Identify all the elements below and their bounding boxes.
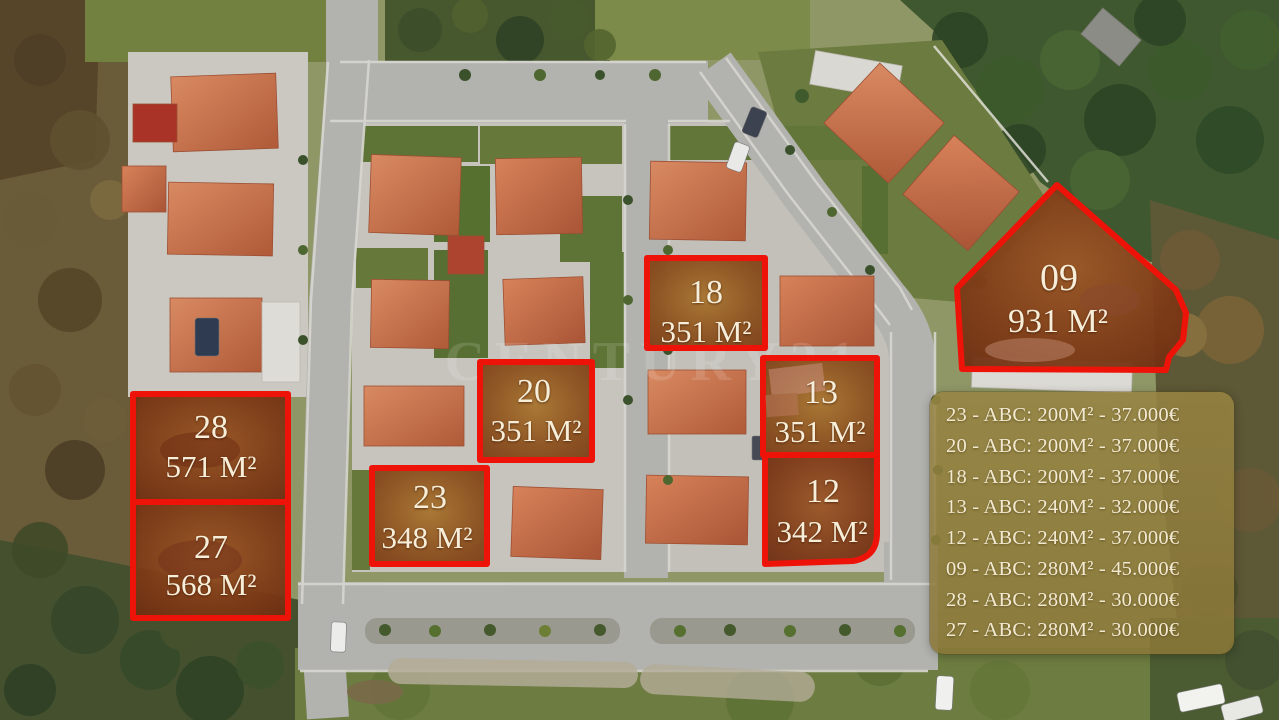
price-row: 28 - ABC: 280M² - 30.000€ xyxy=(946,590,1224,611)
covered-boat xyxy=(195,318,219,356)
house-roof xyxy=(495,157,582,234)
listing-aerial-photo: CENTURY21 28 571 M² 27 568 M² 23 348 M² … xyxy=(0,0,1279,720)
garage-roof xyxy=(262,302,300,382)
plot-28-area: 571 M² xyxy=(165,449,256,484)
price-row: 20 - ABC: 200M² - 37.000€ xyxy=(946,436,1224,457)
house-roof xyxy=(167,182,273,256)
shed-roof xyxy=(133,104,177,142)
plot-13-number: 13 xyxy=(804,374,838,411)
van xyxy=(935,676,954,711)
price-row: 18 - ABC: 200M² - 37.000€ xyxy=(946,467,1224,488)
plot-12-number: 12 xyxy=(806,473,840,510)
plot-09-number: 09 xyxy=(1040,257,1078,299)
plot-20-number: 20 xyxy=(517,373,551,410)
plot-23-number: 23 xyxy=(413,479,447,516)
plot-28-number: 28 xyxy=(194,409,228,446)
plot-18-number: 18 xyxy=(689,274,723,311)
debris-pile xyxy=(347,680,403,704)
house-roof xyxy=(171,73,279,152)
price-row: 12 - ABC: 240M² - 37.000€ xyxy=(946,528,1224,549)
house-roof xyxy=(370,279,449,348)
house-roof xyxy=(364,386,464,446)
plot-20-area: 351 M² xyxy=(490,413,581,448)
plot-12-area: 342 M² xyxy=(776,514,867,549)
price-row: 23 - ABC: 200M² - 37.000€ xyxy=(946,405,1224,426)
parking-median xyxy=(650,618,915,644)
car xyxy=(330,622,346,653)
house-roof xyxy=(511,486,603,559)
price-row: 13 - ABC: 240M² - 32.000€ xyxy=(946,497,1224,518)
plot-13-area: 351 M² xyxy=(774,414,865,449)
house-roof xyxy=(645,475,748,545)
plot-23-area: 348 M² xyxy=(381,520,472,555)
house-roof xyxy=(649,161,746,241)
price-row: 09 - ABC: 280M² - 45.000€ xyxy=(946,559,1224,580)
price-row: 27 - ABC: 280M² - 30.000€ xyxy=(946,620,1224,641)
gravel-path xyxy=(388,658,638,688)
plot-18-area: 351 M² xyxy=(660,314,751,349)
house-roof xyxy=(369,154,462,235)
patio xyxy=(448,236,484,274)
house-roof xyxy=(122,166,166,212)
plot-27-area: 568 M² xyxy=(165,567,256,602)
plot-27-number: 27 xyxy=(194,529,228,566)
price-list-panel: 23 - ABC: 200M² - 37.000€ 20 - ABC: 200M… xyxy=(930,392,1234,654)
plot-09-area: 931 M² xyxy=(1008,303,1108,340)
